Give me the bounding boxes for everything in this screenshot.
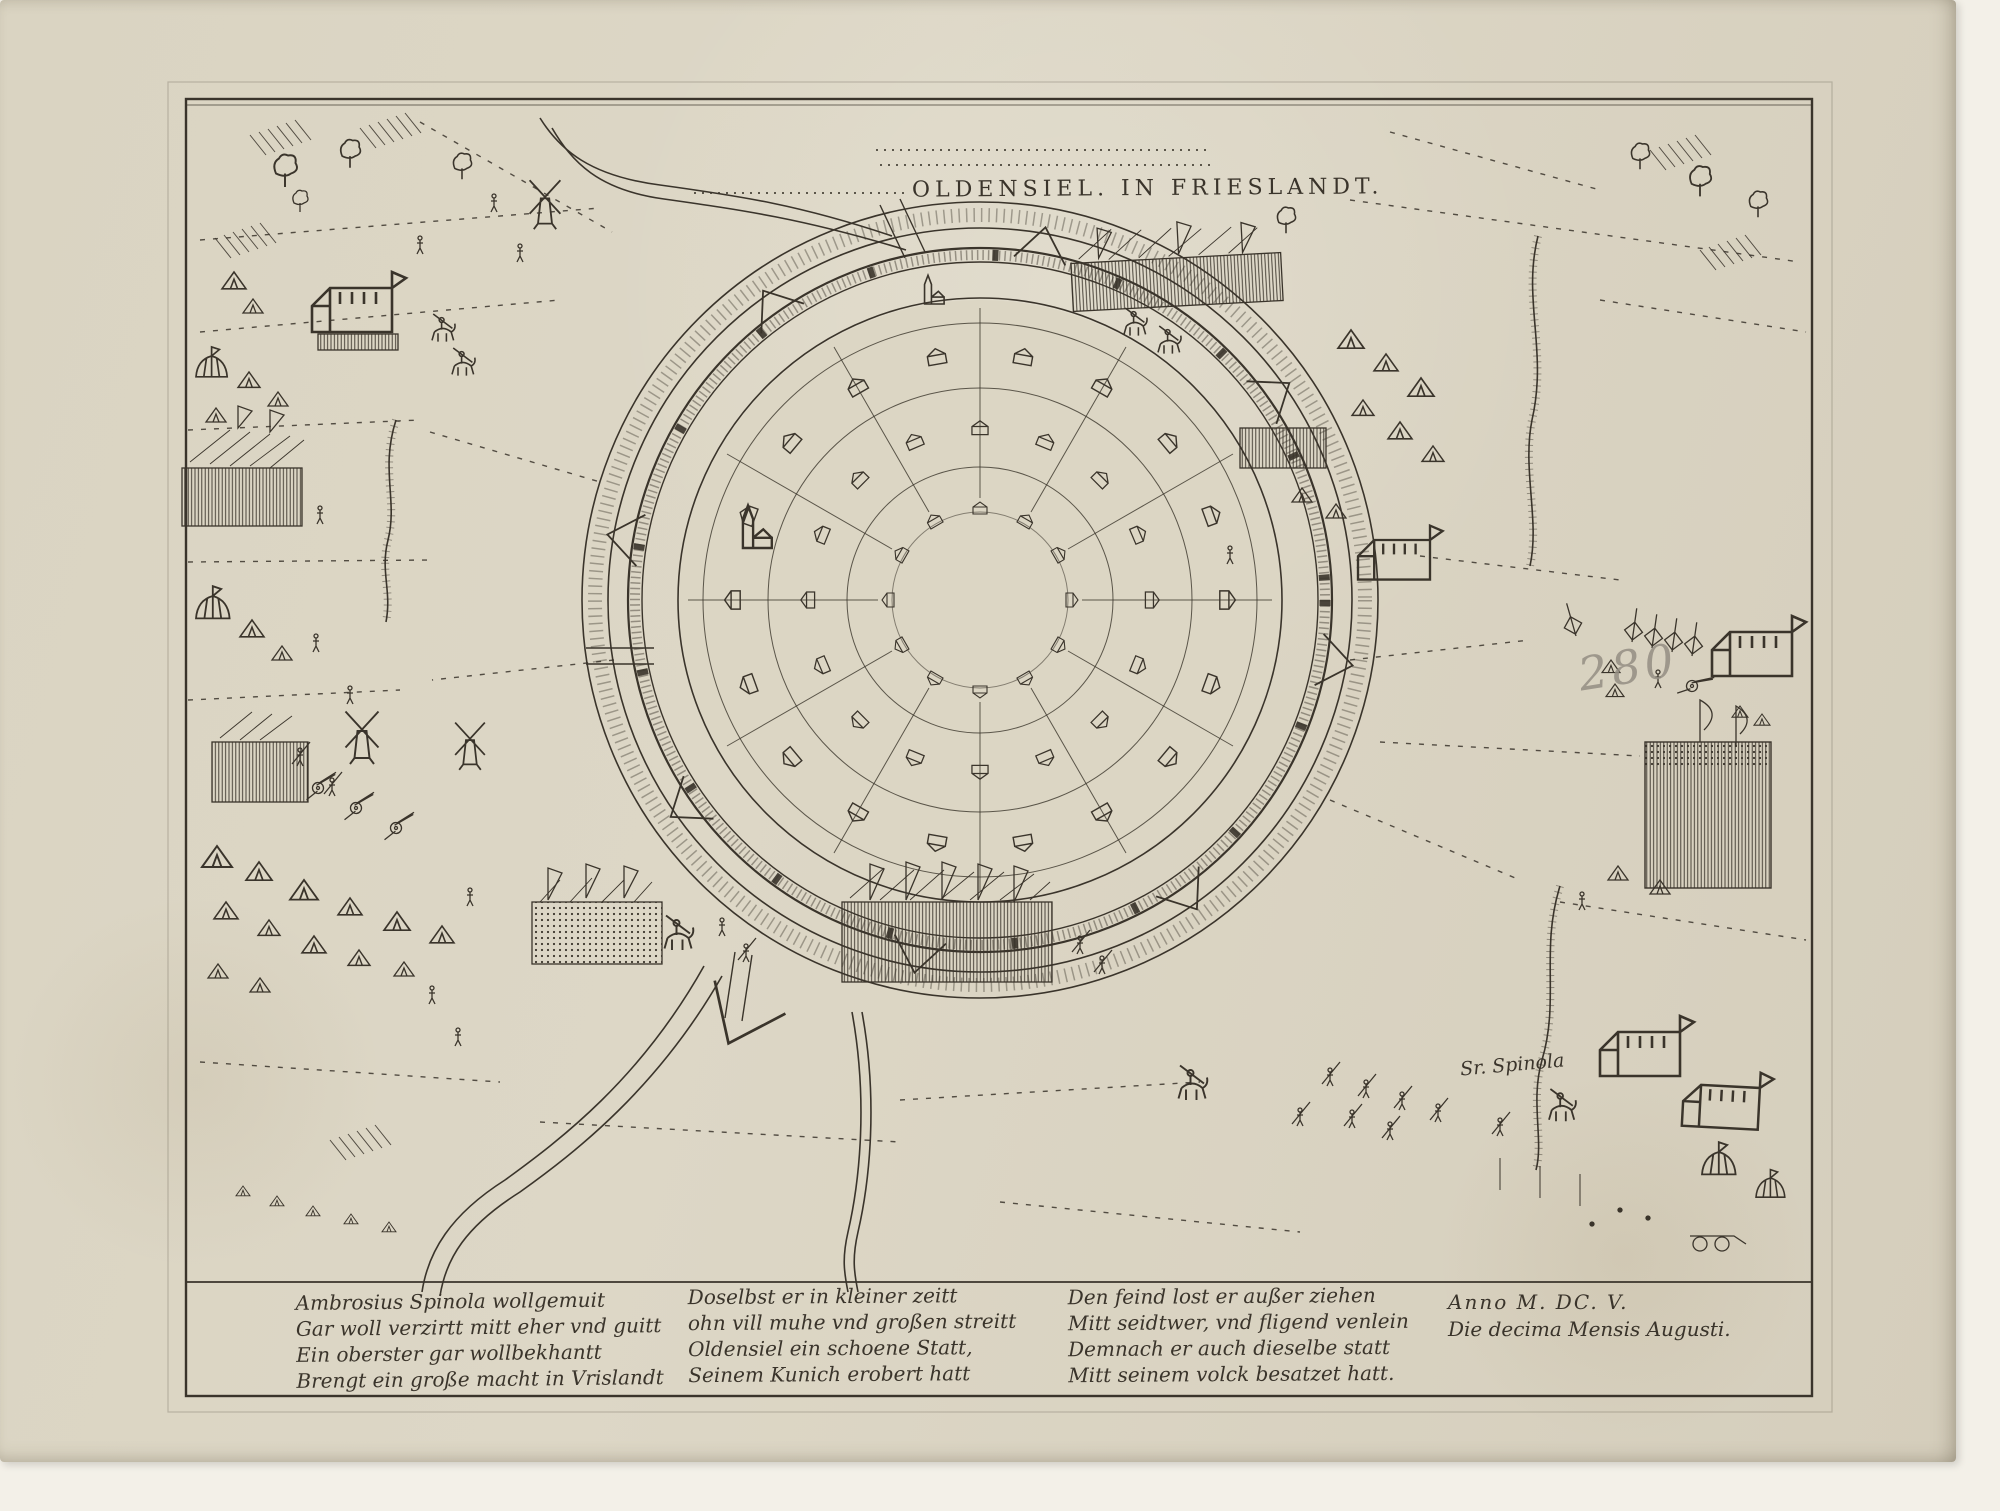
tent-icon: [338, 898, 362, 915]
cannon-cart-icon: [1677, 671, 1714, 700]
pike-army-top-right: [1071, 253, 1283, 312]
pikeman-icon: [738, 938, 756, 962]
pavilion-icon: [312, 272, 406, 332]
horseman-icon: [1158, 326, 1181, 354]
kite-flag-icon: [1558, 601, 1585, 639]
pikeman-icon: [1492, 1112, 1510, 1136]
tent-icon: [290, 880, 318, 900]
verse-line: Oldensiel ein schoene Statt,: [688, 1334, 1016, 1362]
tent-icon: [214, 902, 238, 919]
tent-icon: [1754, 714, 1770, 725]
round-tent-icon: [1702, 1142, 1736, 1174]
palisade-camp: [1645, 700, 1771, 888]
infantry-block: [842, 902, 1052, 982]
tent-icon: [1338, 330, 1364, 348]
church-icon: [925, 275, 945, 304]
pikeman-icon: [1322, 1062, 1340, 1086]
ravelin: [693, 981, 785, 1060]
tent-icon: [250, 978, 270, 992]
tent-icon: [202, 846, 232, 867]
horseman-icon: [1179, 1066, 1208, 1101]
round-tent-icon: [196, 347, 227, 377]
tent-icon: [1388, 422, 1412, 439]
pikeman-icon: [1292, 1102, 1310, 1126]
colophon-date: Die decima Mensis Augusti.: [1448, 1316, 1731, 1343]
tent-icon: [1292, 488, 1312, 502]
tent-icon: [246, 862, 272, 880]
windmill-icon: [346, 712, 379, 765]
tent-icon: [238, 372, 260, 387]
tent-icon: [243, 299, 263, 313]
figure-icon: [455, 1028, 461, 1046]
cannon-icon: [303, 772, 339, 799]
verse-line: Ambrosius Spinola wollgemuit: [295, 1286, 663, 1316]
tent-icon: [1374, 354, 1398, 371]
troop-block: [1240, 428, 1326, 468]
pikeman-icon: [1344, 1104, 1362, 1128]
verse-line: Den feind lost er außer ziehen: [1068, 1282, 1409, 1310]
tree-icon: [1690, 166, 1711, 196]
tent-icon: [206, 408, 226, 422]
pikeman-icon: [1382, 1116, 1400, 1140]
verse-line: Demnach er auch dieselbe statt: [1068, 1334, 1409, 1362]
tent-icon: [1408, 378, 1434, 396]
figure-icon: [417, 236, 423, 254]
tree-icon: [341, 140, 361, 168]
horseman-icon: [1124, 308, 1147, 336]
pikeman-icon: [1358, 1074, 1376, 1098]
verse-line: Brengt ein große macht in Vrislandt: [296, 1364, 664, 1394]
pavilion-icon: [1682, 1069, 1774, 1131]
cannon-icon: [381, 812, 417, 839]
round-tent-icon: [196, 586, 230, 618]
pavilion-icon: [1600, 1016, 1694, 1076]
tree-icon: [274, 155, 297, 188]
pavilion-icon: [1712, 616, 1806, 676]
figure-icon: [429, 986, 435, 1004]
tent-icon: [302, 936, 326, 953]
tent-icon: [306, 1206, 320, 1216]
figure-icon: [317, 506, 323, 524]
round-tent-icon: [1756, 1170, 1785, 1198]
tent-icon: [430, 926, 454, 943]
tent-icon: [384, 912, 410, 930]
tent-icon: [1352, 400, 1374, 415]
verse-line: Mitt seinem volck besatzet hatt.: [1068, 1360, 1409, 1388]
pencil-collection-number: 280: [1575, 636, 1681, 697]
pikeman-icon: [1430, 1098, 1448, 1122]
tent-icon: [208, 964, 228, 978]
verse-column-1: Ambrosius Spinola wollgemuit Gar woll ve…: [295, 1286, 663, 1394]
tree-icon: [453, 153, 471, 179]
horseman-icon: [432, 314, 455, 342]
windmill-icon: [455, 723, 485, 770]
pavilion-icon: [1358, 526, 1443, 580]
tree-icon: [1277, 207, 1295, 233]
tent-icon: [240, 620, 264, 637]
tent-icon: [270, 1196, 284, 1206]
pikeman-icon: [1394, 1086, 1412, 1110]
tent-icon: [382, 1222, 396, 1232]
figure-icon: [517, 244, 523, 262]
tree-icon: [293, 190, 308, 212]
siege-camp-bottom-left: [202, 712, 485, 1232]
troop-block: [318, 334, 398, 350]
figure-icon: [491, 194, 497, 212]
tree-icon: [1749, 191, 1767, 217]
verse-column-2: Doselbst er in kleiner zeitt ohn vill mu…: [688, 1282, 1017, 1388]
tent-icon: [236, 1186, 250, 1196]
tent-icon: [1608, 866, 1628, 880]
pike-column: [212, 742, 308, 802]
verse-line: Mitt seidtwer, vnd fligend venlein: [1068, 1308, 1409, 1336]
etching-sheet: OLDENSIEL. IN FRIESLANDT. Ambrosius Spin…: [0, 0, 2000, 1511]
figure-icon: [1579, 892, 1585, 910]
spinola-horseman-icon: [1549, 1089, 1576, 1121]
cart-icon: [1690, 1236, 1746, 1251]
verse-line: Seinem Kunich erobert hatt: [688, 1360, 1016, 1388]
tent-icon: [344, 1214, 358, 1224]
horseman-icon: [452, 348, 475, 376]
verse-line: Doselbst er in kleiner zeitt: [688, 1282, 1016, 1310]
tent-icon: [272, 646, 292, 660]
verse-line: Gar woll verzirtt mitt eher vnd guitt: [296, 1312, 664, 1342]
tent-icon: [268, 392, 288, 406]
figure-icon: [467, 888, 473, 906]
colophon-year: Anno M. DC. V.: [1448, 1289, 1731, 1316]
tent-icon: [222, 272, 246, 289]
figure-icon: [313, 634, 319, 652]
tree-icon: [1631, 143, 1649, 169]
verse-line: ohn vill muhe vnd großen streitt: [688, 1308, 1016, 1336]
tent-icon: [394, 962, 414, 976]
verse-column-3: Den feind lost er außer ziehen Mitt seid…: [1068, 1282, 1410, 1388]
verse-line: Ein oberster gar wollbekhantt: [296, 1338, 664, 1368]
tent-icon: [1422, 446, 1444, 461]
map-title: OLDENSIEL. IN FRIESLANDT.: [912, 174, 1384, 202]
cannon-icon: [341, 792, 377, 819]
tent-icon: [258, 920, 280, 935]
tent-icon: [348, 950, 370, 965]
spinola-troops-bottom-right: [1179, 1016, 1785, 1251]
cavalry-block: [532, 902, 662, 964]
pike-square: [182, 468, 302, 526]
horseman-icon: [665, 916, 694, 951]
figure-icon: [347, 686, 353, 704]
figure-icon: [719, 918, 725, 936]
colophon: Anno M. DC. V. Die decima Mensis Augusti…: [1448, 1289, 1731, 1343]
